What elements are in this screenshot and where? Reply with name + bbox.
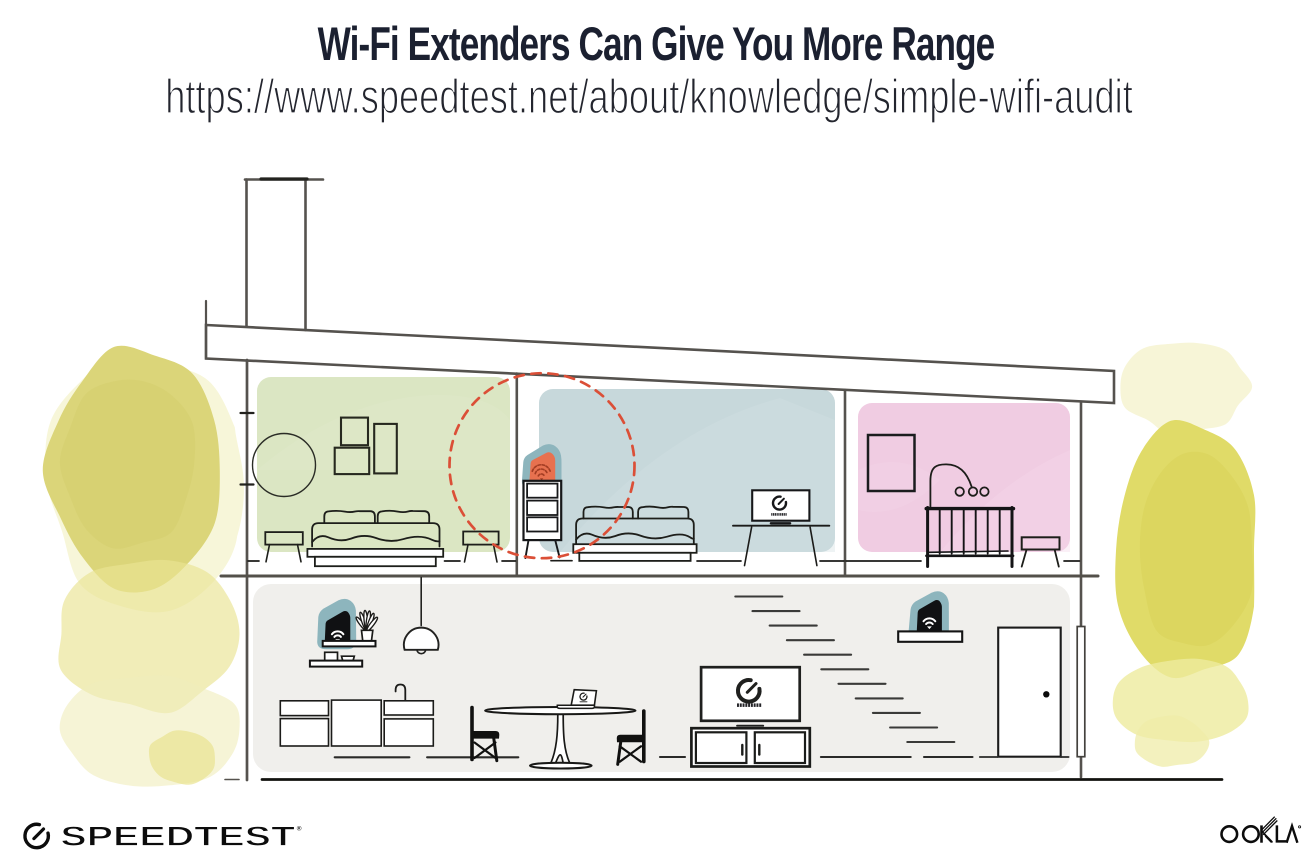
svg-text:®: ® [297, 826, 302, 833]
svg-text:SPEEDTEST: SPEEDTEST [61, 820, 296, 851]
